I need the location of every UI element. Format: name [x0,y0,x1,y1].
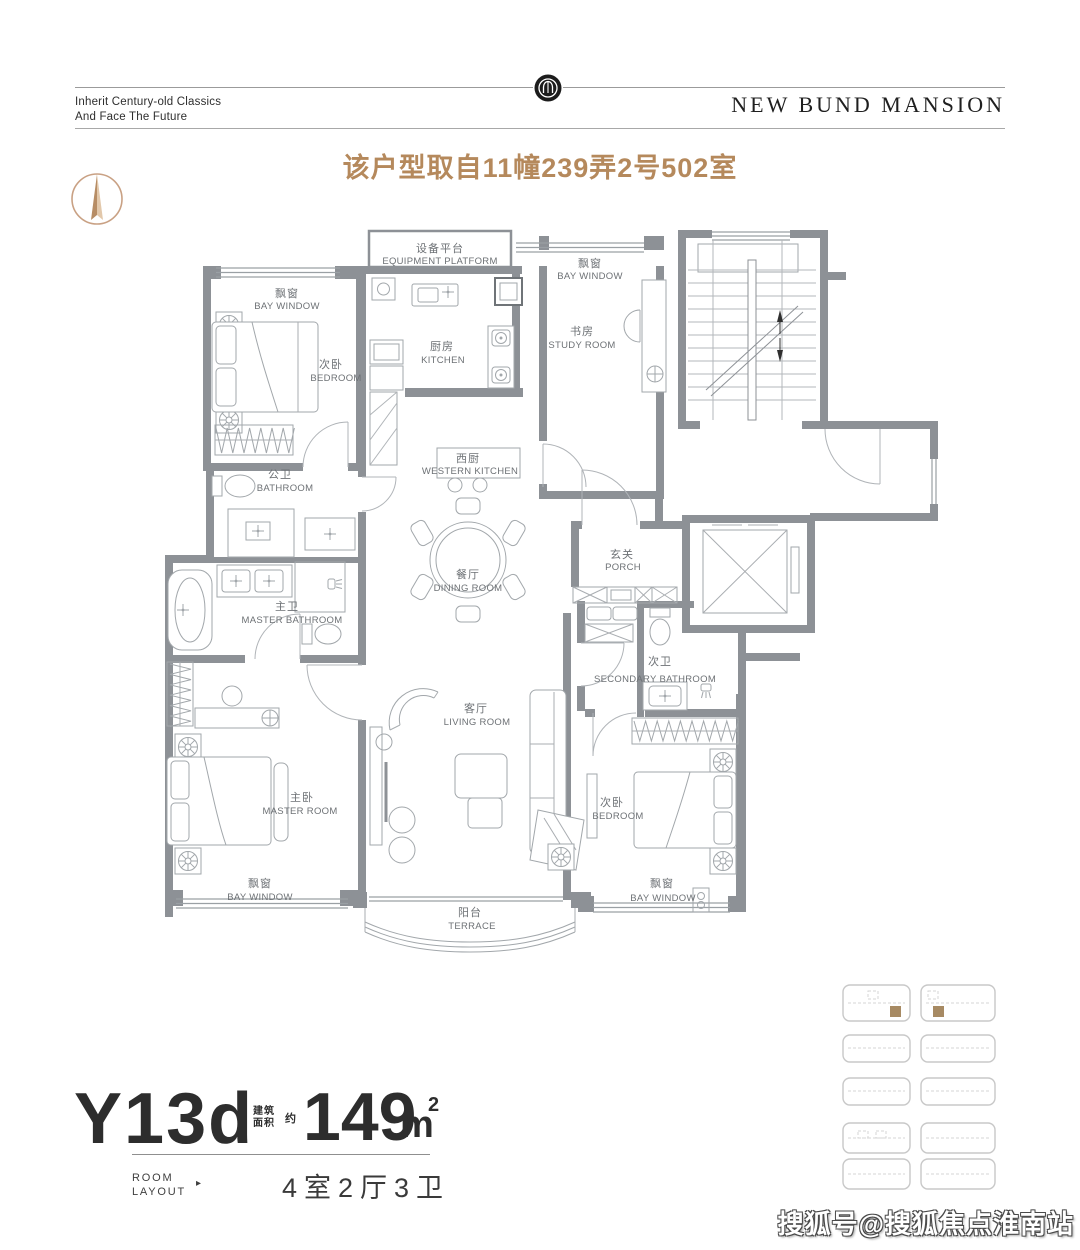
label-bay-window-master-zh: 飘窗 [248,876,272,890]
elevator [703,525,799,613]
site-buildings [843,985,995,1189]
header-rule-left [75,87,533,88]
label-kitchen-en: KITCHEN [421,355,465,366]
selected-unit-markers [890,1006,944,1017]
label-bedroom-tl-zh: 次卧 [319,357,343,371]
area-prefix-line2: 面积 [253,1118,275,1130]
brand-name: NEW BUND MANSION [575,92,1005,118]
page: Inherit Century-old Classics And Face Th… [0,0,1080,1250]
watermark: 搜狐号@搜狐焦点淮南站 [778,1204,1074,1241]
study-furniture [624,280,666,392]
label-bathroom-zh: 公卫 [268,469,292,481]
spec-divider [132,1154,430,1155]
label-master-room-zh: 主卧 [290,791,314,804]
area-approx: 约 [285,1110,296,1126]
tagline-line1: Inherit Century-old Classics [75,95,221,110]
master-room-furniture [167,662,288,874]
label-living-en: LIVING ROOM [444,717,511,728]
page-title: 该户型取自11幢239弄2号502室 [0,146,1080,185]
area-prefix-line1: 建筑 [253,1106,275,1118]
bedroom-bottom-right-furniture [587,718,738,874]
master-bathroom-furniture [168,562,345,650]
layout-text: 4室2厅3卫 [282,1166,450,1205]
header-rule-right [563,87,1005,88]
label-dining-zh: 餐厅 [456,567,480,581]
area-superscript: 2 [428,1094,439,1117]
stairs [688,240,816,420]
dining-table [409,498,527,622]
label-equipment-platform-en: EQUIPMENT PLATFORM [382,256,497,267]
label-bedroom-tl-en: BEDROOM [310,373,361,384]
label-living-zh: 客厅 [464,701,488,715]
room-layout-line1: ROOM [132,1172,186,1186]
room-layout-arrow-icon: ▸ [196,1178,201,1189]
label-master-bathroom-zh: 主卫 [275,600,299,613]
label-bedroom-br-zh: 次卧 [600,795,624,809]
label-study-en: STUDY ROOM [548,340,615,351]
site-key-plan [838,975,1070,1197]
room-layout-label: ROOM LAYOUT [132,1172,186,1200]
brand-gate-logo-icon [533,73,563,103]
label-secondary-bathroom-zh: 次卫 [648,654,672,668]
label-bay-window-study-zh: 飘窗 [578,256,602,270]
label-bay-window-tl-en: BAY WINDOW [254,301,319,312]
label-bay-window-br-en: BAY WINDOW [630,893,695,904]
unit-code: Y13d [74,1078,254,1160]
label-kitchen-zh: 厨房 [430,340,454,353]
header-tagline: Inherit Century-old Classics And Face Th… [75,95,221,125]
label-bay-window-br-zh: 飘窗 [650,876,674,890]
floorplan: 设备平台 EQUIPMENT PLATFORM 飘窗 BAY WINDOW 次卧… [150,222,950,967]
label-terrace-zh: 阳台 [458,905,482,919]
label-bay-window-study-en: BAY WINDOW [557,271,622,282]
label-terrace-en: TERRACE [448,921,496,932]
label-secondary-bathroom-en: SECONDARY BATHROOM [594,674,716,685]
north-indicator-icon [66,170,128,232]
bedroom-top-left-furniture [212,312,318,455]
room-layout-line2: LAYOUT [132,1186,186,1200]
label-bay-window-master-en: BAY WINDOW [227,892,292,903]
label-western-kitchen-en: WESTERN KITCHEN [422,466,518,477]
label-dining-en: DINING ROOM [434,583,503,594]
label-bedroom-br-en: BEDROOM [592,811,643,822]
header-rule-bottom [75,128,1005,129]
kitchen-furniture [370,278,522,390]
label-bathroom-en: BATHROOM [257,483,314,494]
label-porch-en: PORCH [605,562,641,573]
tagline-line2: And Face The Future [75,110,221,125]
label-master-room-en: MASTER ROOM [262,806,337,817]
label-western-kitchen-zh: 西厨 [456,452,480,465]
label-master-bathroom-en: MASTER BATHROOM [242,615,343,626]
label-study-zh: 书房 [570,325,594,338]
area-prefix: 建筑 面积 [253,1106,275,1130]
label-bay-window-tl-zh: 飘窗 [275,286,299,300]
label-equipment-platform-zh: 设备平台 [416,241,464,255]
label-porch-zh: 玄关 [610,547,634,561]
